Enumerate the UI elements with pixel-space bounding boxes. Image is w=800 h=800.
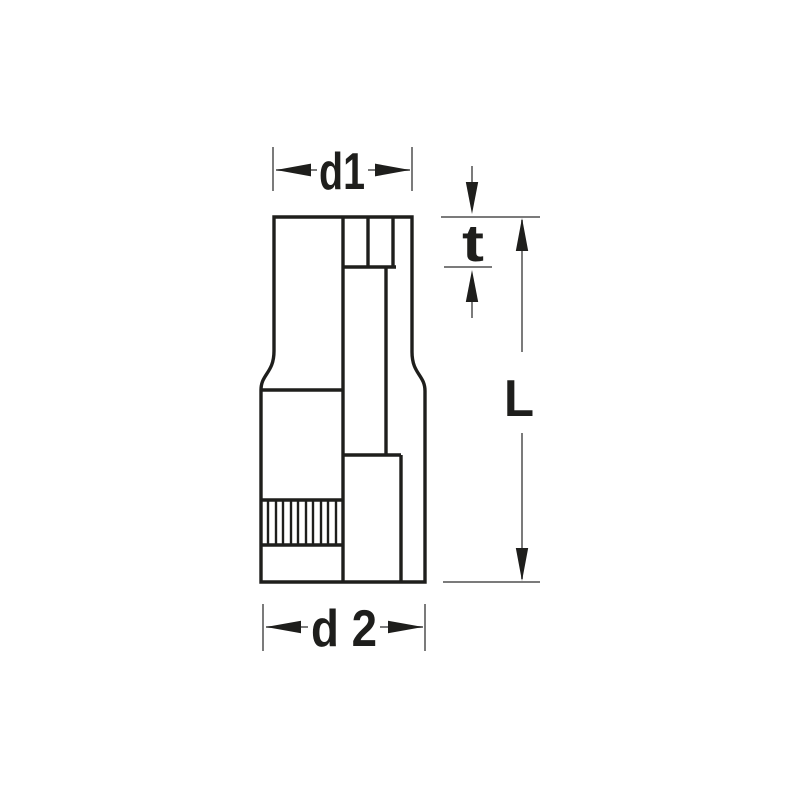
socket-outline: [261, 217, 425, 582]
d1-left-arrow-icon: [276, 164, 311, 177]
drawing-canvas: d1 t L d 2: [0, 0, 800, 800]
t-down-arrow-icon: [466, 182, 478, 214]
l-label: L: [504, 370, 534, 428]
t-up-arrow-icon: [466, 270, 478, 302]
knurling: [268, 501, 336, 544]
t-label: t: [462, 215, 484, 273]
dimension-arrows: [266, 164, 528, 634]
d1-right-arrow-icon: [375, 164, 410, 177]
d1-label: d1: [319, 143, 365, 201]
d2-left-arrow-icon: [266, 621, 301, 633]
l-up-arrow-icon: [516, 218, 528, 251]
d2-label: d 2: [311, 600, 377, 658]
l-down-arrow-icon: [516, 548, 528, 581]
socket-technical-diagram: d1 t L d 2: [0, 0, 800, 800]
d2-right-arrow-icon: [388, 621, 423, 633]
